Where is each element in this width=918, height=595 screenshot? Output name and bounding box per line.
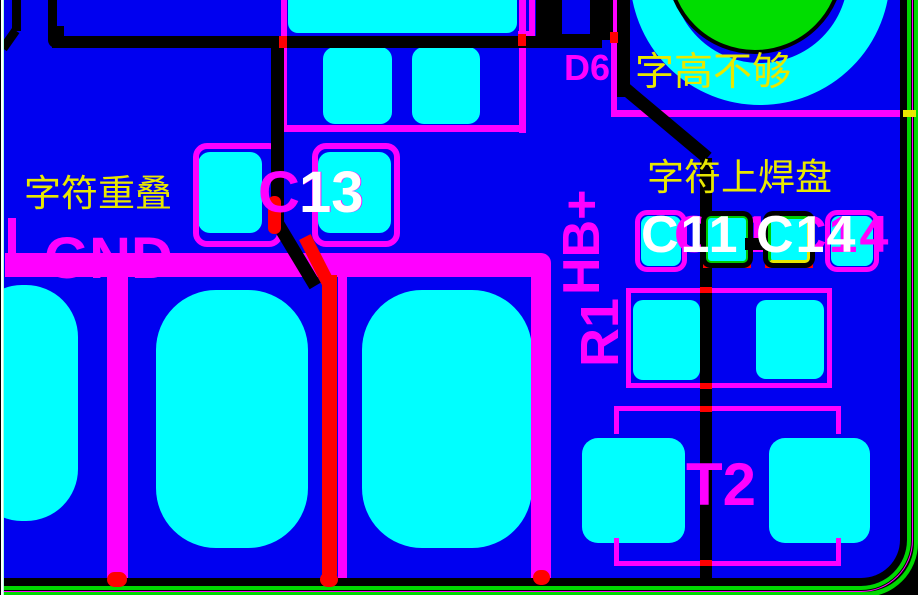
red-tip-left-trace: [107, 572, 127, 587]
left-edge-pale-line: [3, 0, 4, 595]
red-tip-mid-trace: [320, 572, 338, 587]
pcb-canvas: GND C13 D6 HB+ R1 T2 C11 C14 13 C11 C14 …: [0, 0, 918, 595]
annotation-char-on-pad[interactable]: 字符上焊盘: [647, 159, 832, 196]
annotation-char-height[interactable]: 字高不够: [635, 53, 791, 92]
red-tip-gnd-trace: [533, 570, 550, 585]
annotation-overlap[interactable]: 字符重叠: [24, 175, 172, 212]
silk-edge-cross-segment: [903, 110, 916, 117]
